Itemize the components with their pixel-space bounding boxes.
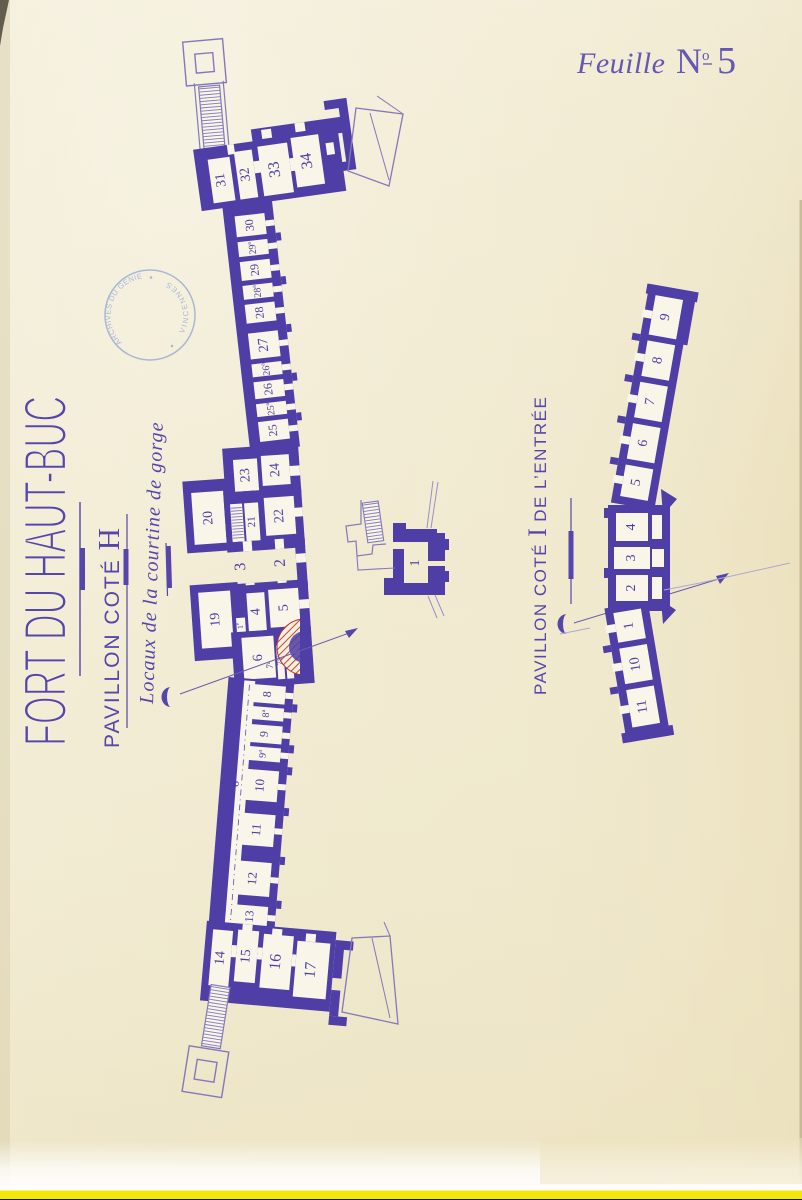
svg-text:6: 6	[228, 780, 242, 787]
svg-text:19: 19	[208, 612, 224, 627]
svg-text:17: 17	[302, 961, 320, 978]
svg-text:16: 16	[267, 953, 285, 970]
svg-text:2: 2	[624, 585, 639, 592]
svg-text:22: 22	[272, 508, 288, 523]
svg-text:10: 10	[251, 778, 267, 792]
svg-text:13: 13	[242, 910, 257, 923]
svg-text:3: 3	[624, 555, 639, 562]
svg-text:9: 9	[257, 731, 271, 738]
svg-text:8: 8	[260, 691, 274, 698]
svg-text:33: 33	[265, 160, 284, 178]
svg-text:Feuille: Feuille	[576, 47, 665, 80]
svg-text:28: 28	[252, 306, 267, 320]
svg-text:FORT DU HAUT-BUC: FORT DU HAUT-BUC	[12, 396, 79, 746]
svg-text:25: 25	[265, 424, 280, 438]
svg-text:11: 11	[248, 823, 264, 837]
svg-text:2: 2	[272, 558, 290, 567]
svg-text:12: 12	[244, 871, 260, 885]
svg-text:26: 26	[260, 382, 275, 396]
svg-text:20: 20	[201, 510, 217, 525]
svg-text:5: 5	[276, 604, 291, 612]
svg-text:4: 4	[624, 524, 639, 531]
svg-text:24: 24	[267, 463, 283, 478]
svg-text:4: 4	[249, 608, 264, 616]
svg-text:27: 27	[256, 337, 272, 353]
svg-text:30: 30	[242, 219, 257, 233]
svg-text:34: 34	[297, 152, 316, 170]
svg-text:23: 23	[238, 468, 254, 483]
svg-text:6: 6	[251, 654, 266, 662]
svg-text:15: 15	[238, 949, 254, 964]
svg-text:11: 11	[634, 699, 651, 715]
svg-text:10: 10	[627, 656, 644, 672]
svg-text:32: 32	[237, 167, 254, 183]
svg-text:31: 31	[213, 172, 230, 188]
svg-text:21: 21	[245, 516, 258, 528]
svg-text:3: 3	[232, 562, 250, 571]
svg-text:14: 14	[212, 950, 228, 965]
svg-text:1: 1	[408, 560, 423, 567]
svg-text:29: 29	[247, 263, 262, 277]
